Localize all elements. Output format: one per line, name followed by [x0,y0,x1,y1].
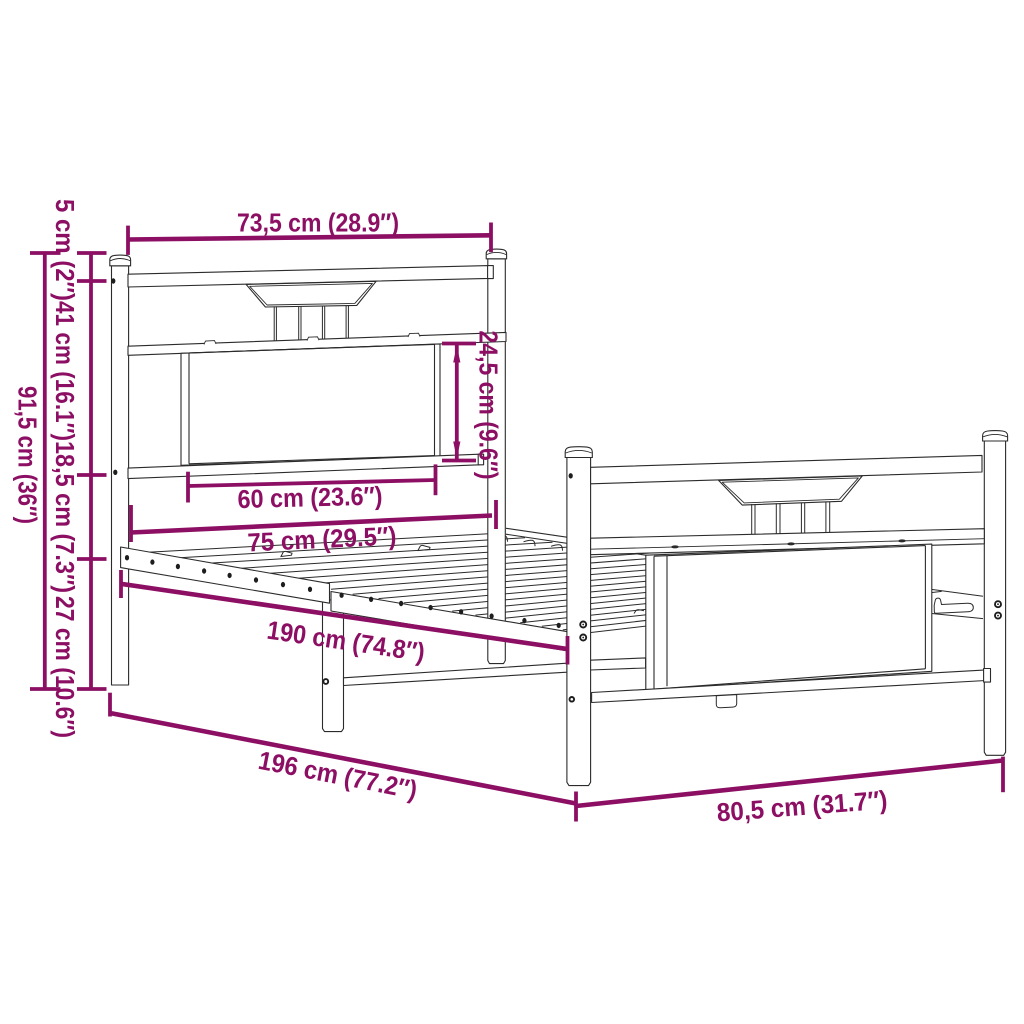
svg-text:24,5 cm (9.6″): 24,5 cm (9.6″) [474,331,504,480]
svg-text:27 cm (10.6″): 27 cm (10.6″) [50,596,80,738]
svg-text:60 cm (23.6″): 60 cm (23.6″) [237,481,383,515]
svg-text:91,5 cm (36″): 91,5 cm (36″) [13,386,43,524]
svg-text:5 cm (2″): 5 cm (2″) [50,199,80,301]
svg-text:73,5 cm (28.9″): 73,5 cm (28.9″) [237,208,399,238]
svg-text:18,5 cm (7.3″): 18,5 cm (7.3″) [50,441,80,593]
svg-text:41 cm (16.1″): 41 cm (16.1″) [50,301,80,441]
